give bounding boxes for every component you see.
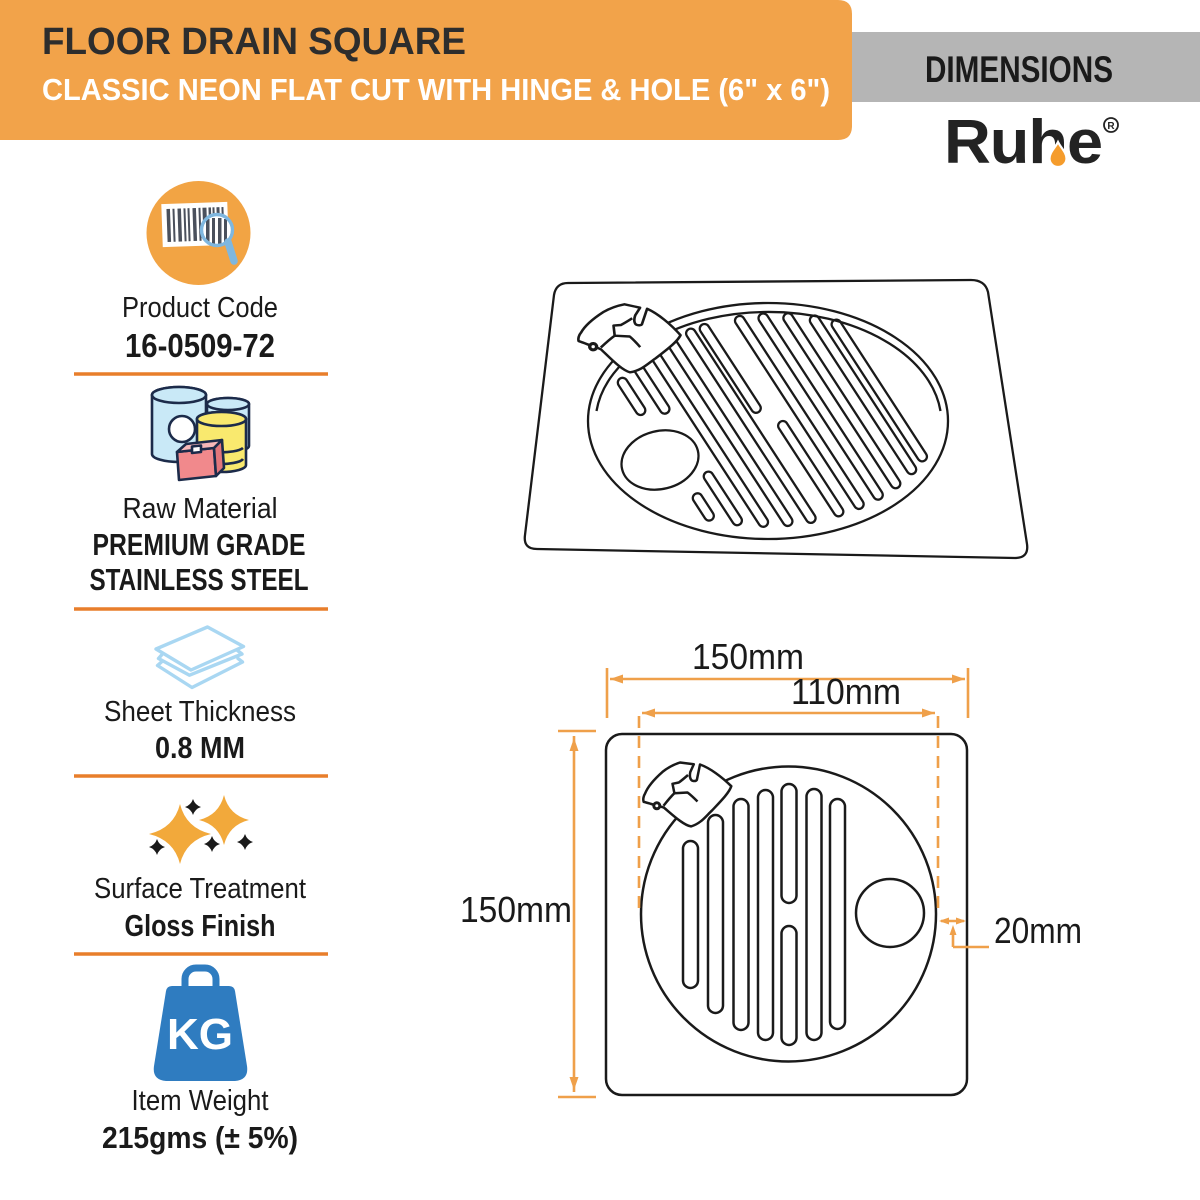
svg-text:Ruhe: Ruhe [944, 108, 1102, 177]
svg-text:CLASSIC NEON FLAT CUT WITH HIN: CLASSIC NEON FLAT CUT WITH HINGE & HOLE … [42, 72, 830, 107]
svg-text:Item Weight: Item Weight [132, 1085, 269, 1117]
svg-text:Sheet Thickness: Sheet Thickness [104, 696, 296, 728]
svg-text:16-0509-72: 16-0509-72 [125, 327, 275, 364]
svg-text:DIMENSIONS: DIMENSIONS [925, 49, 1113, 90]
svg-text:150mm: 150mm [692, 636, 804, 677]
svg-text:Product Code: Product Code [122, 292, 278, 324]
svg-text:110mm: 110mm [791, 671, 901, 712]
svg-text:R: R [1107, 121, 1115, 132]
svg-text:PREMIUM GRADE: PREMIUM GRADE [93, 527, 306, 562]
svg-text:FLOOR DRAIN SQUARE: FLOOR DRAIN SQUARE [42, 21, 466, 63]
svg-text:20mm: 20mm [994, 910, 1082, 951]
svg-text:Surface Treatment: Surface Treatment [94, 873, 306, 905]
svg-text:150mm: 150mm [460, 889, 572, 930]
svg-text:STAINLESS STEEL: STAINLESS STEEL [90, 562, 309, 597]
svg-text:Gloss Finish: Gloss Finish [125, 908, 276, 943]
svg-text:KG: KG [167, 1010, 233, 1059]
svg-text:215gms (± 5%): 215gms (± 5%) [102, 1120, 298, 1155]
svg-text:Raw Material: Raw Material [123, 493, 278, 525]
svg-text:0.8 MM: 0.8 MM [155, 730, 245, 765]
